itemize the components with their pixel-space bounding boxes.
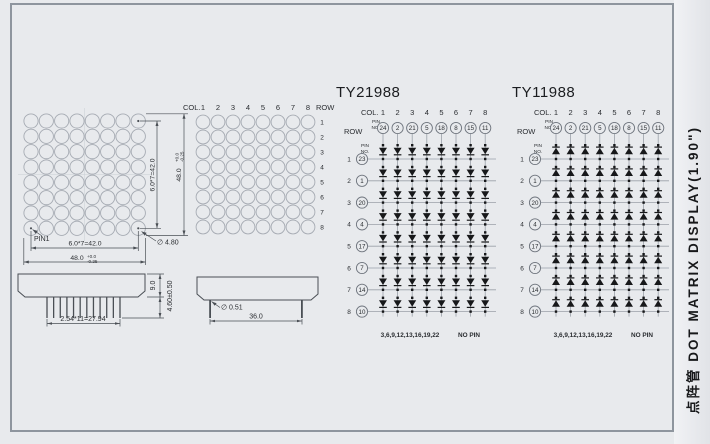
- diode-triangle-up: [625, 170, 633, 177]
- col-number: 4: [425, 108, 429, 117]
- junction-dot: [555, 209, 557, 211]
- col-number: 3: [583, 108, 587, 117]
- led-dot: [256, 205, 270, 219]
- junction-dot: [599, 231, 601, 233]
- diode-triangle-up: [640, 257, 648, 264]
- no-pin-label: NO PIN: [631, 332, 653, 339]
- col-number: 1: [381, 108, 385, 117]
- led-dot: [196, 190, 210, 204]
- led-dot: [55, 175, 69, 189]
- junction-dot: [584, 245, 586, 247]
- diode-triangle-down: [394, 257, 402, 264]
- side-title-strip: 点阵管 DOT MATRIX DISPLAY(1.90"): [674, 0, 710, 444]
- row-number: 3: [520, 200, 524, 207]
- led-dot: [101, 129, 115, 143]
- junction-dot: [440, 223, 442, 225]
- tolerance-minus: -0.25: [87, 259, 98, 264]
- junction-dot: [455, 166, 457, 168]
- junction-dot: [584, 166, 586, 168]
- diode-triangle-up: [610, 170, 618, 177]
- dim-body-height: 9.0: [150, 281, 157, 291]
- led-dot: [101, 175, 115, 189]
- junction-dot: [426, 201, 428, 203]
- diode-triangle-down: [379, 257, 387, 264]
- junction-dot: [411, 297, 413, 299]
- junction-dot: [396, 188, 398, 190]
- led-dot: [301, 145, 315, 159]
- diode-triangle-down: [481, 170, 489, 177]
- no-pin-list: 3,6,9,12,13,16,19,22: [381, 332, 440, 339]
- led-dot: [24, 206, 38, 220]
- col-number: 8: [483, 108, 487, 117]
- junction-dot: [599, 166, 601, 168]
- col-number: 3: [231, 103, 235, 112]
- junction-dot: [469, 253, 471, 255]
- led-dot: [196, 175, 210, 189]
- col-number: 1: [201, 103, 205, 112]
- diode-triangle-down: [452, 191, 460, 198]
- led-dot: [70, 191, 84, 205]
- led-dot: [24, 129, 38, 143]
- pin-number: 18: [611, 125, 618, 132]
- led-dot: [70, 160, 84, 174]
- diode-triangle-down: [437, 300, 445, 307]
- junction-dot: [469, 209, 471, 211]
- junction-dot: [382, 289, 384, 291]
- diode-triangle-up: [567, 148, 575, 155]
- junction-dot: [555, 275, 557, 277]
- row-number: 8: [347, 309, 351, 316]
- center-mark: [137, 227, 139, 229]
- junction-dot: [440, 289, 442, 291]
- junction-dot: [469, 310, 471, 312]
- junction-dot: [411, 267, 413, 269]
- junction-dot: [599, 275, 601, 277]
- junction-dot: [469, 188, 471, 190]
- junction-dot: [396, 223, 398, 225]
- led-dot: [55, 160, 69, 174]
- junction-dot: [628, 209, 630, 211]
- junction-dot: [411, 310, 413, 312]
- diode-triangle-down: [437, 257, 445, 264]
- junction-dot: [469, 275, 471, 277]
- row-number: 8: [320, 224, 324, 231]
- junction-dot: [555, 158, 557, 160]
- junction-dot: [484, 289, 486, 291]
- pin-number: 14: [359, 287, 366, 294]
- junction-dot: [657, 297, 659, 299]
- led-dot: [301, 190, 315, 204]
- col-number: 5: [439, 108, 443, 117]
- diode-triangle-up: [596, 191, 604, 198]
- junction-dot: [628, 158, 630, 160]
- junction-dot: [613, 158, 615, 160]
- junction-dot: [455, 180, 457, 182]
- junction-dot: [411, 231, 413, 233]
- pin1-label: PIN1: [34, 236, 50, 243]
- side-view-side-drawing: ∅ 0.51 36.0: [192, 268, 327, 330]
- junction-dot: [411, 158, 413, 160]
- junction-dot: [657, 201, 659, 203]
- led-dot: [55, 221, 69, 235]
- pin-number: 4: [360, 222, 364, 229]
- junction-dot: [599, 297, 601, 299]
- junction-dot: [555, 253, 557, 255]
- junction-dot: [396, 253, 398, 255]
- diode-triangle-up: [640, 235, 648, 242]
- junction-dot: [469, 180, 471, 182]
- pin-number: 1: [360, 178, 364, 185]
- junction-dot: [469, 223, 471, 225]
- junction-dot: [642, 297, 644, 299]
- led-dot: [256, 175, 270, 189]
- center-mark: [137, 120, 139, 122]
- diode-triangle-down: [379, 300, 387, 307]
- junction-dot: [484, 166, 486, 168]
- diode-triangle-down: [481, 235, 489, 242]
- junction-dot: [440, 209, 442, 211]
- diode-triangle-up: [654, 257, 662, 264]
- col-number: 6: [454, 108, 458, 117]
- led-dot: [211, 160, 225, 174]
- junction-dot: [657, 180, 659, 182]
- junction-dot: [569, 158, 571, 160]
- dim-overall-h: 48.0: [70, 255, 83, 262]
- row-number: 8: [520, 309, 524, 316]
- led-dot: [85, 175, 99, 189]
- led-dot: [39, 221, 53, 235]
- junction-dot: [396, 267, 398, 269]
- row-number: 2: [347, 178, 351, 185]
- diode-triangle-up: [552, 257, 560, 264]
- led-dot: [116, 129, 130, 143]
- led-dot: [271, 205, 285, 219]
- no-pin-label: NO PIN: [458, 332, 480, 339]
- junction-dot: [555, 245, 557, 247]
- led-dot: [211, 175, 225, 189]
- junction-dot: [440, 275, 442, 277]
- row-label: ROW: [517, 127, 536, 136]
- junction-dot: [396, 245, 398, 247]
- led-dot: [241, 175, 255, 189]
- junction-dot: [555, 201, 557, 203]
- dim-led-pitch-h: 6.0*7=42.0: [68, 241, 101, 248]
- led-dot: [196, 160, 210, 174]
- junction-dot: [411, 209, 413, 211]
- row-number: 6: [520, 265, 524, 272]
- junction-dot: [613, 201, 615, 203]
- led-dot: [241, 115, 255, 129]
- side-title-text: 点阵管 DOT MATRIX DISPLAY(1.90"): [682, 126, 702, 414]
- col-number: 6: [276, 103, 280, 112]
- junction-dot: [455, 209, 457, 211]
- junction-dot: [569, 267, 571, 269]
- junction-dot: [440, 253, 442, 255]
- led-dot: [116, 175, 130, 189]
- junction-dot: [569, 297, 571, 299]
- junction-dot: [455, 245, 457, 247]
- junction-dot: [411, 223, 413, 225]
- junction-dot: [396, 166, 398, 168]
- junction-dot: [396, 144, 398, 146]
- led-dot: [55, 114, 69, 128]
- diode-triangle-up: [567, 170, 575, 177]
- junction-dot: [657, 188, 659, 190]
- junction-dot: [469, 201, 471, 203]
- junction-dot: [455, 267, 457, 269]
- junction-dot: [396, 180, 398, 182]
- diode-triangle-up: [640, 213, 648, 220]
- diode-triangle-up: [581, 170, 589, 177]
- diode-triangle-up: [567, 235, 575, 242]
- junction-dot: [642, 231, 644, 233]
- pin-number: 15: [467, 125, 474, 132]
- junction-dot: [613, 275, 615, 277]
- junction-dot: [657, 310, 659, 312]
- led-dot: [226, 130, 240, 144]
- junction-dot: [555, 310, 557, 312]
- led-dot: [286, 115, 300, 129]
- col-number: 5: [612, 108, 616, 117]
- junction-dot: [426, 188, 428, 190]
- dim-pin-span: 36.0: [249, 314, 263, 321]
- diode-triangle-down: [437, 213, 445, 220]
- led-dot: [271, 145, 285, 159]
- diode-triangle-up: [567, 279, 575, 286]
- led-dot: [85, 145, 99, 159]
- junction-dot: [657, 245, 659, 247]
- junction-dot: [584, 188, 586, 190]
- junction-dot: [426, 209, 428, 211]
- led-dot: [70, 145, 84, 159]
- diode-triangle-down: [481, 213, 489, 220]
- led-dot: [101, 160, 115, 174]
- led-dot: [226, 145, 240, 159]
- junction-dot: [396, 310, 398, 312]
- junction-dot: [599, 201, 601, 203]
- diode-triangle-up: [654, 191, 662, 198]
- col-number: 4: [598, 108, 602, 117]
- diode-triangle-up: [625, 300, 633, 307]
- led-dot: [55, 145, 69, 159]
- package-body: [197, 277, 318, 300]
- junction-dot: [396, 201, 398, 203]
- junction-dot: [555, 223, 557, 225]
- led-dot: [226, 175, 240, 189]
- circuit-content: COL.ROWPINNO.PINNO.123456782422151881511…: [344, 108, 496, 339]
- diode-triangle-down: [467, 257, 475, 264]
- led-dot: [226, 160, 240, 174]
- diode-triangle-down: [408, 213, 416, 220]
- junction-dot: [642, 289, 644, 291]
- led-dot: [131, 175, 145, 189]
- junction-dot: [440, 245, 442, 247]
- pin-number: 20: [359, 200, 366, 207]
- led-dot: [70, 206, 84, 220]
- diode-triangle-down: [423, 300, 431, 307]
- junction-dot: [440, 180, 442, 182]
- diode-triangle-down: [394, 279, 402, 286]
- junction-dot: [455, 253, 457, 255]
- junction-dot: [382, 166, 384, 168]
- junction-dot: [484, 267, 486, 269]
- col-number: 6: [627, 108, 631, 117]
- junction-dot: [411, 201, 413, 203]
- junction-dot: [455, 223, 457, 225]
- junction-dot: [455, 231, 457, 233]
- pin-number: 14: [532, 287, 539, 294]
- junction-dot: [411, 253, 413, 255]
- junction-dot: [642, 188, 644, 190]
- led-dot: [131, 145, 145, 159]
- junction-dot: [584, 144, 586, 146]
- pin-number: 10: [359, 309, 366, 316]
- junction-dot: [382, 231, 384, 233]
- junction-dot: [599, 267, 601, 269]
- led-dot: [196, 130, 210, 144]
- junction-dot: [555, 267, 557, 269]
- junction-dot: [426, 144, 428, 146]
- junction-dot: [555, 144, 557, 146]
- junction-dot: [599, 180, 601, 182]
- junction-dot: [484, 188, 486, 190]
- junction-dot: [382, 180, 384, 182]
- row-number: 7: [347, 287, 351, 294]
- diode-triangle-down: [379, 148, 387, 155]
- diode-triangle-down: [423, 235, 431, 242]
- diode-triangle-up: [625, 191, 633, 198]
- led-dot: [301, 115, 315, 129]
- junction-dot: [569, 223, 571, 225]
- diode-triangle-down: [467, 235, 475, 242]
- diode-triangle-up: [654, 148, 662, 155]
- junction-dot: [469, 245, 471, 247]
- junction-dot: [555, 180, 557, 182]
- pin-number: 17: [532, 243, 539, 250]
- center-mark: [30, 227, 32, 229]
- diode-triangle-down: [467, 279, 475, 286]
- junction-dot: [569, 144, 571, 146]
- junction-dot: [584, 297, 586, 299]
- junction-dot: [426, 275, 428, 277]
- junction-dot: [628, 267, 630, 269]
- diode-triangle-down: [452, 300, 460, 307]
- junction-dot: [613, 209, 615, 211]
- diode-triangle-up: [654, 213, 662, 220]
- bus-lines: [541, 134, 669, 317]
- junction-dot: [642, 253, 644, 255]
- col-header-label: COL.: [183, 103, 201, 112]
- diode-triangle-down: [408, 257, 416, 264]
- diode-triangle-down: [467, 170, 475, 177]
- junction-dot: [382, 253, 384, 255]
- col-number: 4: [246, 103, 250, 112]
- junction-dot: [628, 144, 630, 146]
- led-dot: [256, 220, 270, 234]
- junction-dot: [599, 144, 601, 146]
- led-dot: [70, 221, 84, 235]
- diode-triangle-up: [610, 279, 618, 286]
- diode-triangle-up: [596, 170, 604, 177]
- diode-triangle-down: [394, 191, 402, 198]
- diode-triangle-down: [452, 148, 460, 155]
- led-dot: [116, 114, 130, 128]
- led-dot: [55, 206, 69, 220]
- junction-dot: [584, 310, 586, 312]
- junction-dot: [642, 310, 644, 312]
- led-dot: [286, 220, 300, 234]
- diode-triangle-up: [596, 213, 604, 220]
- diode-triangle-down: [452, 170, 460, 177]
- led-dot: [301, 205, 315, 219]
- module-title-ty11988: TY11988: [512, 84, 575, 101]
- led-dot: [196, 205, 210, 219]
- diode-triangle-down: [394, 170, 402, 177]
- pin-number: 4: [533, 222, 537, 229]
- diode-triangle-down: [394, 213, 402, 220]
- dim-pin-diameter: ∅ 0.51: [221, 305, 243, 312]
- led-dot: [241, 205, 255, 219]
- diode-triangle-down: [481, 191, 489, 198]
- junction-dot: [469, 289, 471, 291]
- diode-triangle-down: [467, 300, 475, 307]
- led-dot: [271, 220, 285, 234]
- led-dot: [241, 220, 255, 234]
- diode-triangle-down: [467, 148, 475, 155]
- diode-triangle-down: [437, 148, 445, 155]
- led-dot: [301, 160, 315, 174]
- junction-dot: [484, 275, 486, 277]
- junction-dot: [469, 166, 471, 168]
- pin-no-label: PIN: [361, 143, 370, 149]
- led-dot: [271, 160, 285, 174]
- diode-triangle-up: [610, 235, 618, 242]
- front-view-drawing: 6.0*7=42.0 48.0 +0.0 -0.25 6.0*7=42.0 48…: [15, 105, 195, 273]
- diode-triangle-up: [640, 300, 648, 307]
- row-label: ROW: [344, 127, 363, 136]
- side-view-front-drawing: 2.54*11=27.94 9.0 4.60±0.50: [12, 268, 187, 333]
- bus-lines: [368, 134, 496, 317]
- datasheet-page: { "side_strip": { "label": "点阵管 DOT MATR…: [0, 0, 710, 444]
- junction-dot: [628, 245, 630, 247]
- diode-triangle-down: [408, 148, 416, 155]
- pin-number: 10: [532, 309, 539, 316]
- diode-triangle-down: [394, 148, 402, 155]
- col-number: 2: [569, 108, 573, 117]
- junction-dot: [396, 158, 398, 160]
- junction-dot: [455, 297, 457, 299]
- junction-dot: [426, 231, 428, 233]
- led-dot: [116, 145, 130, 159]
- row-number: 3: [347, 200, 351, 207]
- junction-dot: [569, 209, 571, 211]
- pin-number: 21: [582, 125, 589, 132]
- junction-dot: [411, 180, 413, 182]
- junction-dot: [613, 253, 615, 255]
- diode-triangle-up: [654, 235, 662, 242]
- col-number: 7: [469, 108, 473, 117]
- junction-dot: [584, 289, 586, 291]
- junction-dot: [411, 144, 413, 146]
- junction-dot: [657, 289, 659, 291]
- junction-dot: [382, 275, 384, 277]
- diode-triangle-down: [408, 279, 416, 286]
- diode-triangle-up: [581, 279, 589, 286]
- led-dot: [196, 220, 210, 234]
- diode-triangle-up: [581, 300, 589, 307]
- pin-number: 2: [569, 125, 573, 132]
- junction-dot: [396, 275, 398, 277]
